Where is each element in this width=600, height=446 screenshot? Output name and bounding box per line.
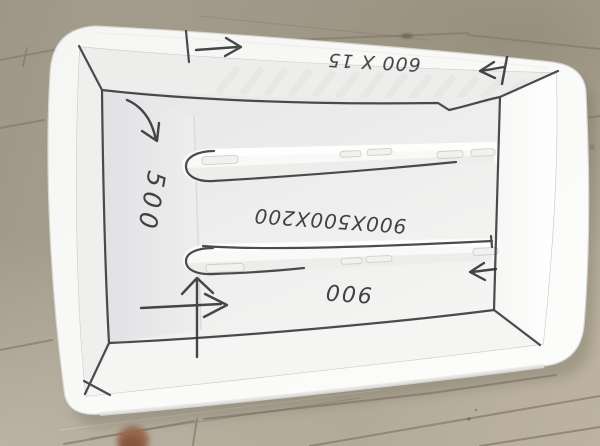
rail-slot	[367, 148, 392, 155]
rail-slot	[437, 150, 463, 158]
mold-photo: 600 X 15 500 900X500X200 900	[0, 0, 600, 446]
plastic-mold: 600 X 15 500 900X500X200 900	[48, 26, 589, 414]
rail-slot	[473, 248, 498, 256]
rail-slot	[340, 151, 361, 158]
marker-rail-nub	[491, 236, 492, 247]
rail-slot	[366, 256, 392, 263]
rail-slot	[471, 148, 495, 156]
rail-slot	[202, 155, 238, 165]
annotation-floor-width: 900	[323, 278, 373, 306]
rail-slot	[341, 258, 362, 265]
photo-stage: 600 X 15 500 900X500X200 900	[0, 0, 600, 446]
rail-slot	[206, 263, 244, 272]
